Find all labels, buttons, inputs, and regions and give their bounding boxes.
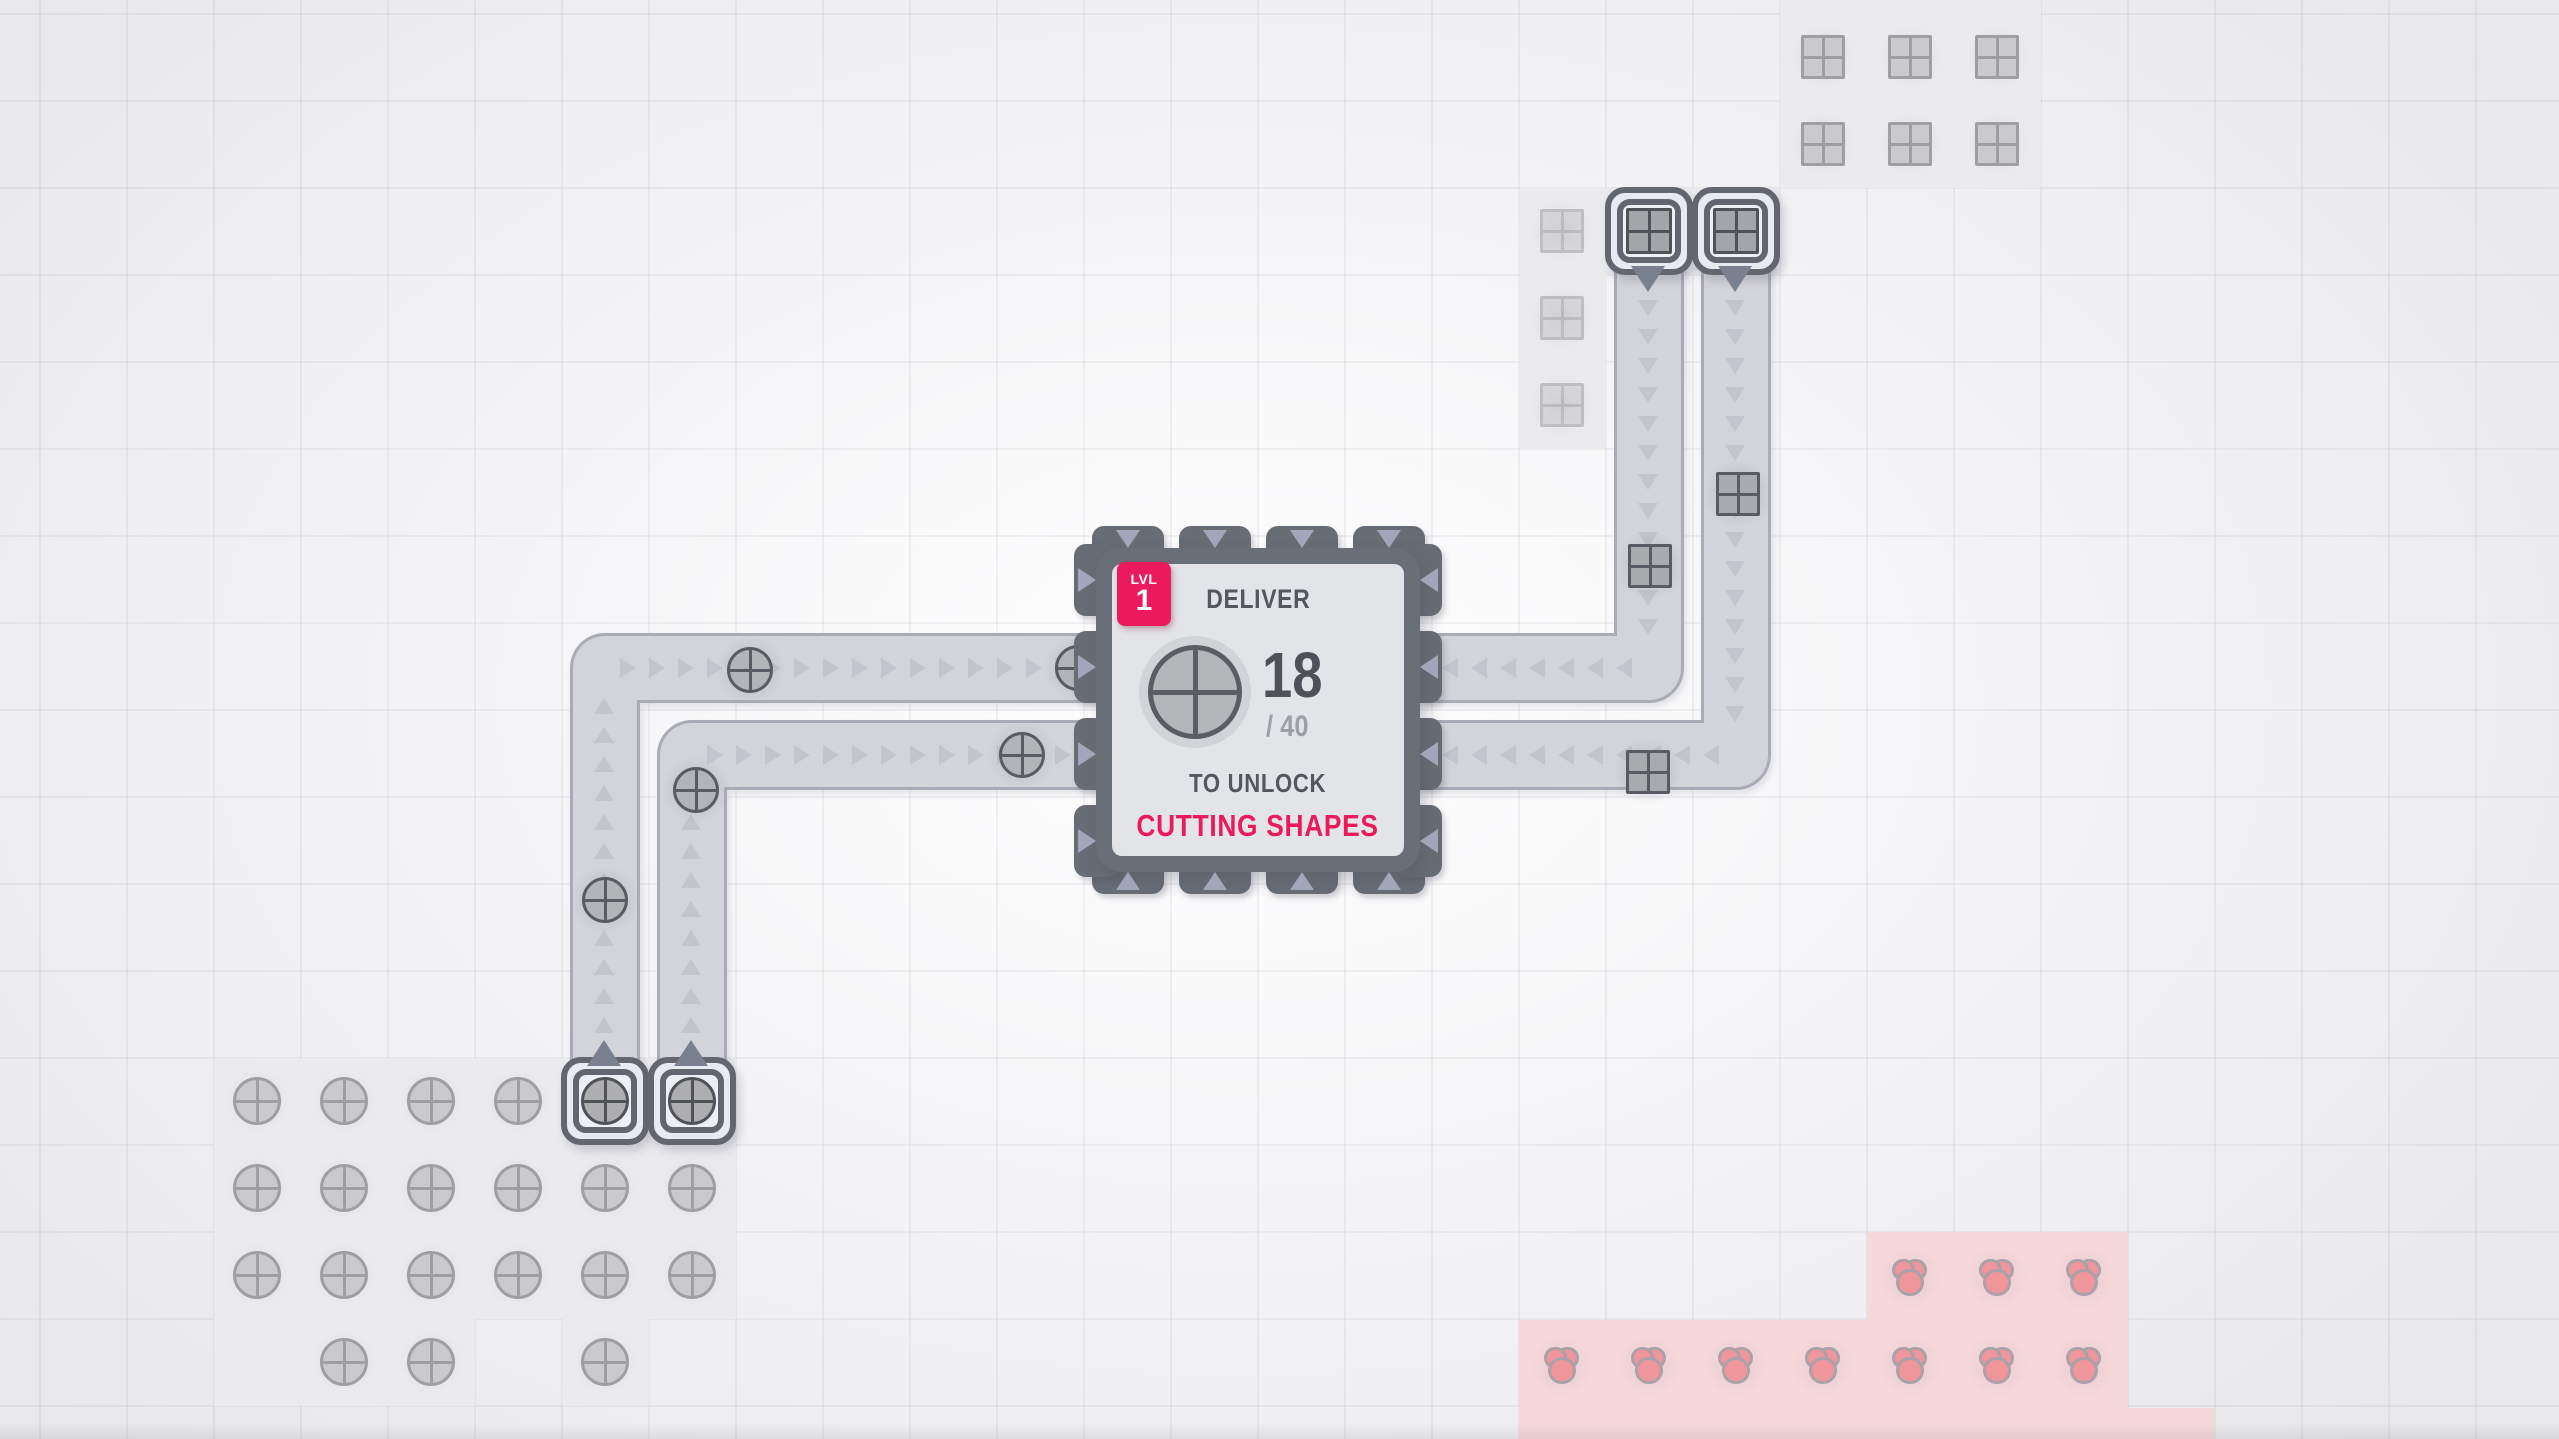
square-deposit-in-extractor bbox=[1713, 208, 1759, 254]
belt-arrow bbox=[1026, 658, 1042, 678]
hub-input-arrow-left bbox=[1420, 742, 1438, 766]
extractor-building[interactable] bbox=[1605, 187, 1693, 275]
belt-arrow bbox=[1616, 658, 1632, 678]
belt-arrow bbox=[794, 658, 810, 678]
belt-arrow bbox=[1587, 745, 1603, 765]
hub-input-arrow-right bbox=[1078, 655, 1096, 679]
belt-arrow bbox=[1725, 590, 1745, 606]
belt-arrow bbox=[910, 658, 926, 678]
conveyor-belt[interactable] bbox=[1420, 255, 1649, 668]
hub-input-arrow-down bbox=[1203, 530, 1227, 548]
hub-input-arrow-left bbox=[1420, 568, 1438, 592]
belt-arrow bbox=[678, 658, 694, 678]
unlock-label: TO UNLOCK bbox=[1112, 768, 1404, 799]
belt-arrow bbox=[910, 745, 926, 765]
belt-arrow bbox=[1442, 658, 1458, 678]
extractor-building[interactable] bbox=[561, 1057, 649, 1145]
shape-cross-line bbox=[691, 1080, 694, 1122]
bottom-vignette bbox=[0, 1423, 2559, 1439]
belt-item-circle bbox=[727, 647, 773, 693]
hub-input-arrow-up bbox=[1290, 872, 1314, 890]
belt-arrow bbox=[620, 658, 636, 678]
belt-arrow bbox=[1638, 300, 1658, 316]
belt-arrow bbox=[1703, 745, 1719, 765]
hub-input-arrow-down bbox=[1116, 530, 1140, 548]
deliver-title: DELIVER bbox=[1112, 584, 1404, 615]
belt-arrow bbox=[681, 959, 701, 975]
belt-arrow bbox=[1471, 745, 1487, 765]
belt-arrow bbox=[1725, 387, 1745, 403]
belt-item-circle bbox=[999, 732, 1045, 778]
belt-arrow bbox=[594, 785, 614, 801]
belt-arrow bbox=[1725, 648, 1745, 664]
belt-arrow bbox=[681, 930, 701, 946]
belt-arrow bbox=[968, 658, 984, 678]
belt-arrow bbox=[1442, 745, 1458, 765]
belt-arrow bbox=[881, 745, 897, 765]
belt-arrow bbox=[681, 843, 701, 859]
belt-arrow bbox=[1638, 387, 1658, 403]
belt-arrow bbox=[681, 988, 701, 1004]
belt-arrow bbox=[1055, 745, 1071, 765]
belt-arrow bbox=[1638, 619, 1658, 635]
belt-item-square bbox=[1628, 544, 1672, 588]
belt-arrow bbox=[794, 745, 810, 765]
extractor-building[interactable] bbox=[1692, 187, 1780, 275]
belt-arrow bbox=[1529, 745, 1545, 765]
belt-arrow bbox=[1638, 445, 1658, 461]
hub-input-arrow-left bbox=[1420, 655, 1438, 679]
belt-arrow bbox=[997, 658, 1013, 678]
belt-arrow bbox=[939, 745, 955, 765]
belt-arrow bbox=[594, 698, 614, 714]
conveyor-belt[interactable] bbox=[692, 755, 1122, 1078]
belt-arrow bbox=[1558, 745, 1574, 765]
belt-arrow bbox=[594, 959, 614, 975]
shape-cross-line bbox=[1649, 547, 1652, 585]
extractor-building[interactable] bbox=[648, 1057, 736, 1145]
belt-arrow bbox=[681, 901, 701, 917]
shape-cross-line bbox=[604, 1080, 607, 1122]
shape-cross-line bbox=[749, 650, 752, 690]
belt-arrow bbox=[1725, 619, 1745, 635]
belt-arrow bbox=[765, 745, 781, 765]
belt-arrow bbox=[681, 1017, 701, 1033]
belt-arrow bbox=[1500, 658, 1516, 678]
hub-input-arrow-up bbox=[1203, 872, 1227, 890]
belt-arrow bbox=[1725, 706, 1745, 722]
belt-arrow bbox=[1471, 658, 1487, 678]
belt-arrow bbox=[1725, 358, 1745, 374]
belt-item-circle bbox=[582, 877, 628, 923]
belt-item-square bbox=[1626, 750, 1670, 794]
belt-arrow bbox=[681, 872, 701, 888]
circle-deposit-in-extractor bbox=[668, 1077, 716, 1125]
shape-cross-line bbox=[1647, 753, 1650, 791]
hub-input-arrow-right bbox=[1078, 568, 1096, 592]
belt-arrow bbox=[823, 745, 839, 765]
belt-arrow bbox=[594, 756, 614, 772]
hub-input-arrow-down bbox=[1377, 530, 1401, 548]
belt-arrow bbox=[594, 843, 614, 859]
belt-arrow bbox=[1725, 561, 1745, 577]
shape-cross-line bbox=[1735, 211, 1738, 251]
belt-arrow bbox=[852, 745, 868, 765]
extractor-output-arrow bbox=[674, 1040, 708, 1066]
extractor-output-arrow bbox=[1631, 266, 1665, 292]
belt-arrow bbox=[594, 988, 614, 1004]
shape-cross-line bbox=[1193, 650, 1198, 734]
belt-arrow bbox=[1638, 474, 1658, 490]
belt-arrow bbox=[1638, 329, 1658, 345]
belt-arrow bbox=[594, 1017, 614, 1033]
belt-arrow bbox=[1638, 358, 1658, 374]
hub-input-arrow-left bbox=[1420, 829, 1438, 853]
belt-arrow bbox=[823, 658, 839, 678]
circle-deposit-in-extractor bbox=[581, 1077, 629, 1125]
hub-panel[interactable]: LVL 1 DELIVER 18 / 40 TO UNLOCK CUTTING … bbox=[1112, 564, 1404, 856]
belt-arrow bbox=[968, 745, 984, 765]
belt-arrow bbox=[1638, 503, 1658, 519]
hub-input-arrow-right bbox=[1078, 742, 1096, 766]
belt-arrow bbox=[939, 658, 955, 678]
shape-cross-line bbox=[1737, 475, 1740, 513]
extractor-output-arrow bbox=[587, 1040, 621, 1066]
shape-cross-line bbox=[604, 880, 607, 920]
belt-arrow bbox=[736, 745, 752, 765]
belt-arrow bbox=[881, 658, 897, 678]
belt-item-circle bbox=[673, 767, 719, 813]
belt-arrow bbox=[1500, 745, 1516, 765]
belt-arrow bbox=[852, 658, 868, 678]
conveyor-belt[interactable] bbox=[692, 755, 1122, 1078]
reward-name: CUTTING SHAPES bbox=[1112, 808, 1404, 844]
belt-arrow bbox=[1725, 329, 1745, 345]
shape-cross-line bbox=[1648, 211, 1651, 251]
belt-arrow bbox=[1725, 300, 1745, 316]
belt-item-square bbox=[1716, 472, 1760, 516]
shape-cross-line bbox=[1021, 735, 1024, 775]
shape-cross-line bbox=[695, 770, 698, 810]
hub-input-arrow-up bbox=[1377, 872, 1401, 890]
belt-arrow bbox=[594, 814, 614, 830]
hub-input-arrow-down bbox=[1290, 530, 1314, 548]
hub-input-arrow-up bbox=[1116, 872, 1140, 890]
belt-arrow bbox=[1529, 658, 1545, 678]
belt-arrow bbox=[1638, 416, 1658, 432]
belt-arrow bbox=[1725, 532, 1745, 548]
game-map-viewport[interactable]: LVL 1 DELIVER 18 / 40 TO UNLOCK CUTTING … bbox=[0, 0, 2559, 1439]
belt-arrow bbox=[594, 727, 614, 743]
hub-input-arrow-right bbox=[1078, 829, 1096, 853]
belt-arrow bbox=[1725, 677, 1745, 693]
delivered-count: 18 bbox=[1262, 642, 1323, 708]
belt-arrow bbox=[1558, 658, 1574, 678]
belt-arrow bbox=[649, 658, 665, 678]
belt-arrow bbox=[1725, 416, 1745, 432]
circle-quad-shape-icon bbox=[1148, 645, 1242, 739]
delivery-goal: / 40 bbox=[1266, 710, 1309, 744]
extractor-output-arrow bbox=[1718, 266, 1752, 292]
belt-arrow bbox=[1587, 658, 1603, 678]
square-deposit-in-extractor bbox=[1626, 208, 1672, 254]
